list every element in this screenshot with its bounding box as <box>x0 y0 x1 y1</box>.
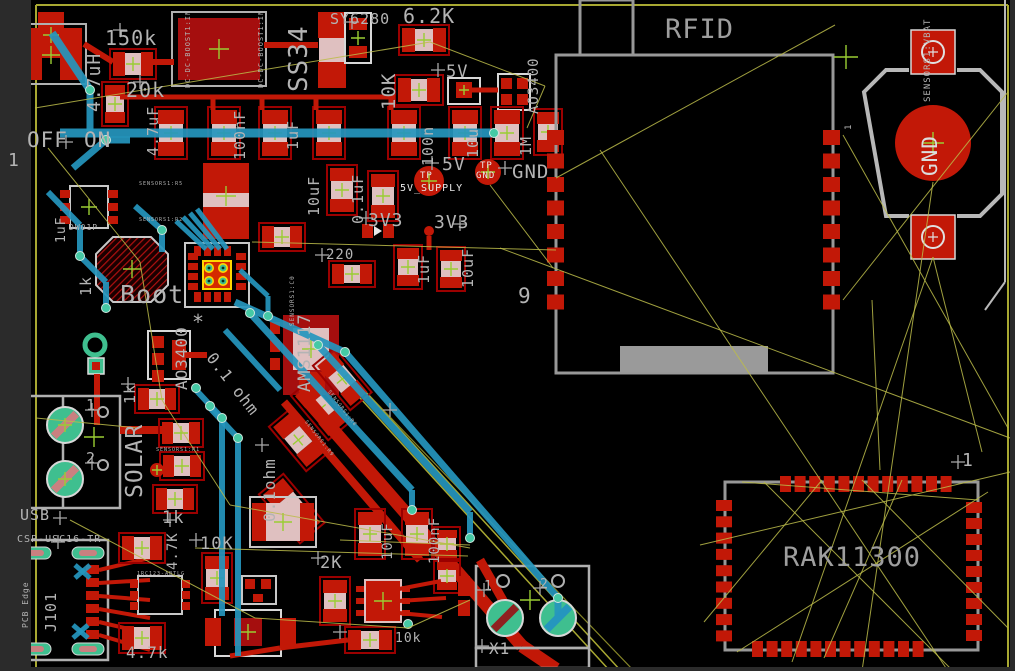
pcb-editor-canvas[interactable]: 4.7uH150k20kDC-DC-BOOST1:INDC-DC-BOOST1:… <box>0 0 1015 671</box>
canvas-gutter-right <box>1010 0 1015 671</box>
canvas-gutter-left <box>0 0 31 671</box>
board-graphics <box>0 0 1015 671</box>
canvas-gutter-bottom <box>0 667 1015 671</box>
